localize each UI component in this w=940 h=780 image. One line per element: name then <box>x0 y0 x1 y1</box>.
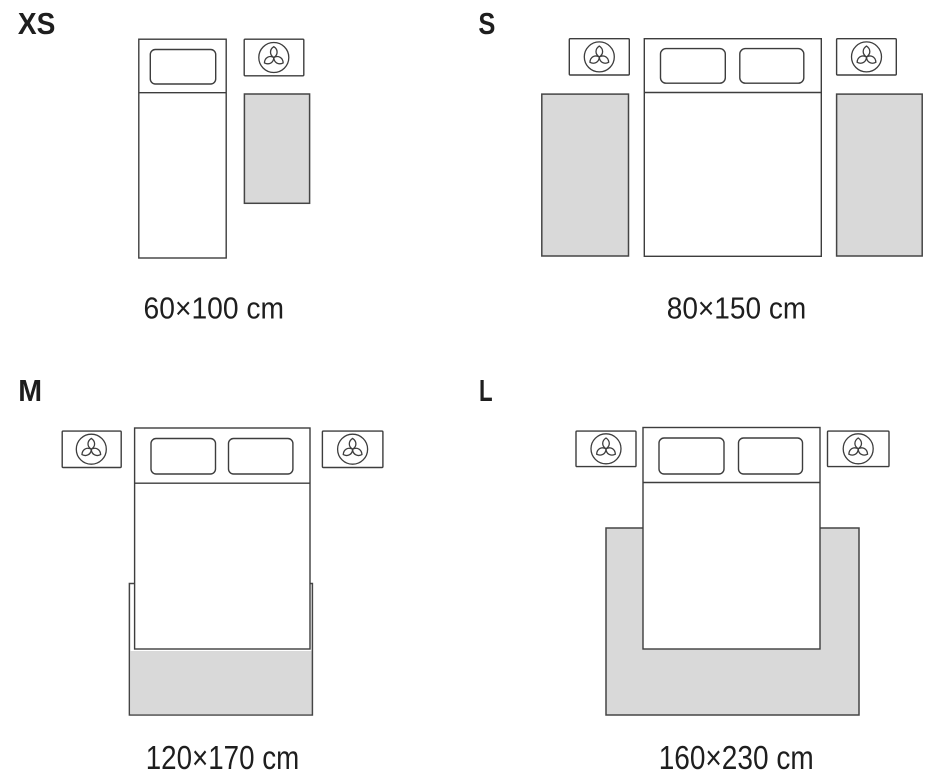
svg-text:60×100 cm: 60×100 cm <box>144 291 285 326</box>
svg-text:L: L <box>479 373 493 408</box>
svg-text:S: S <box>478 6 495 41</box>
svg-text:M: M <box>18 373 42 408</box>
svg-text:80×150 cm: 80×150 cm <box>667 291 807 326</box>
svg-text:120×170 cm: 120×170 cm <box>146 740 300 777</box>
svg-text:160×230 cm: 160×230 cm <box>659 740 814 777</box>
svg-text:XS: XS <box>18 6 56 41</box>
